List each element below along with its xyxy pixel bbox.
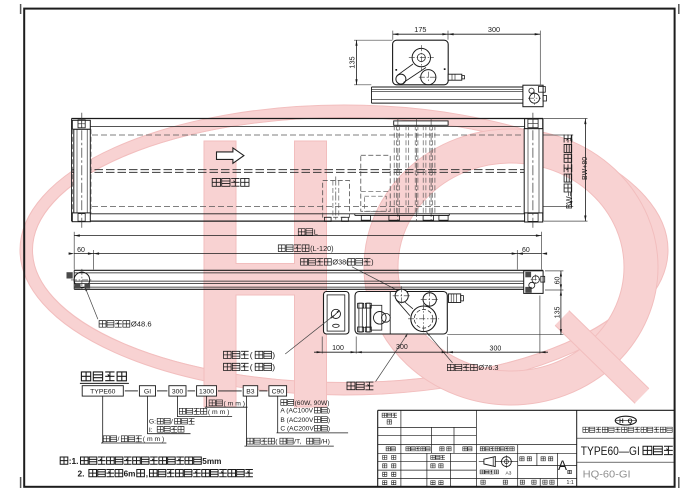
svg-text:300: 300 [490, 345, 502, 352]
svg-text:/: / [171, 419, 173, 426]
svg-text:(60W, 90W): (60W, 90W) [295, 400, 330, 407]
svg-text:GI: GI [144, 388, 151, 395]
svg-text:60: 60 [554, 277, 561, 285]
svg-text:Ø38(: Ø38( [332, 258, 349, 267]
svg-text:6m: 6m [124, 469, 136, 478]
svg-text:,: , [146, 469, 148, 478]
svg-text:2.: 2. [78, 468, 85, 478]
svg-text:(L-120): (L-120) [310, 244, 334, 253]
svg-text:(: ( [275, 439, 278, 446]
svg-text:175: 175 [414, 25, 426, 34]
svg-text:1300: 1300 [199, 388, 214, 395]
svg-text:C90: C90 [272, 388, 285, 395]
svg-text:(: ( [250, 350, 253, 360]
svg-text:1:1: 1:1 [567, 480, 574, 486]
svg-text:( m m ): ( m m ) [224, 401, 246, 408]
svg-text:): ) [328, 408, 330, 415]
svg-text:A: A [558, 458, 567, 473]
svg-text:135: 135 [347, 56, 356, 68]
svg-text:(: ( [250, 362, 253, 372]
svg-text:): ) [371, 258, 373, 267]
svg-text:A3: A3 [506, 470, 512, 476]
svg-text:BW=: BW= [565, 191, 574, 209]
svg-text:B3: B3 [246, 388, 255, 395]
svg-text:TYPE60—GI: TYPE60—GI [581, 444, 640, 458]
svg-text:/: / [118, 436, 120, 443]
svg-text:300: 300 [172, 388, 184, 395]
svg-text:HQ-60-GI: HQ-60-GI [583, 470, 631, 481]
svg-text:60: 60 [77, 247, 85, 254]
svg-text::1.: :1. [69, 456, 79, 466]
svg-text:BW+80: BW+80 [582, 157, 589, 180]
svg-text:300: 300 [488, 25, 500, 34]
svg-text:300: 300 [396, 344, 408, 351]
svg-text:B (AC200V: B (AC200V [280, 417, 314, 424]
svg-text:100: 100 [332, 345, 344, 352]
svg-text:5mm: 5mm [202, 457, 221, 466]
svg-text:L: L [314, 227, 318, 236]
svg-text:): ) [328, 426, 330, 433]
svg-text:A (AC100V: A (AC100V [280, 408, 313, 415]
svg-text:Ø48.6: Ø48.6 [131, 320, 152, 329]
svg-text:60: 60 [522, 247, 530, 254]
svg-text:): ) [272, 350, 275, 360]
svg-text:Ø76.3: Ø76.3 [478, 363, 498, 372]
svg-text:( m m ): ( m m ) [208, 409, 230, 416]
svg-text:I:: I: [149, 427, 153, 434]
svg-text:/T,: /T, [294, 439, 301, 446]
svg-text:( m m ): ( m m ) [143, 436, 165, 443]
svg-text:Q: Q [628, 418, 633, 425]
svg-text:H: H [619, 418, 624, 425]
svg-text:): ) [328, 417, 330, 424]
svg-text:TYPE60: TYPE60 [90, 388, 116, 395]
svg-text:/H): /H) [321, 439, 330, 446]
svg-text:): ) [272, 362, 275, 372]
svg-text:G:: G: [149, 419, 156, 426]
svg-text:C (AC200V: C (AC200V [280, 426, 314, 433]
svg-text:135: 135 [554, 306, 561, 318]
